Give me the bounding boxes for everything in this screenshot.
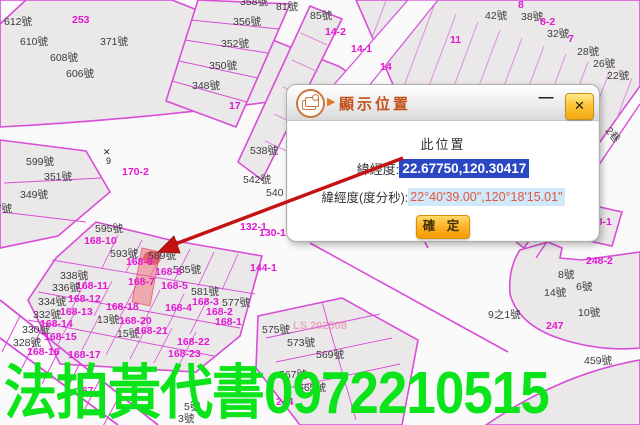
dialog-titlebar[interactable]: ▶ 顯示位置 — ✕: [287, 85, 599, 121]
title-bullet-icon: ▶: [327, 95, 335, 108]
target-location-marker: [143, 251, 161, 265]
position-heading: 此位置: [287, 134, 599, 153]
confirm-button[interactable]: 確 定: [416, 215, 470, 239]
map-position-icon: [296, 89, 325, 118]
dialog-title: 顯示位置: [339, 93, 411, 114]
map-app-window: 612號610號608號606號371號253358號81號356號352號35…: [0, 0, 640, 425]
dialog-body: 此位置 緯經度: 22.67750,120.30417 緯經度(度分秒): 22…: [287, 121, 599, 241]
close-button[interactable]: ✕: [565, 93, 594, 120]
latlng-label: 緯經度:: [357, 159, 400, 178]
minimize-button[interactable]: —: [537, 89, 555, 111]
dms-value[interactable]: 22°40'39.00",120°18'15.01": [408, 188, 564, 206]
watermark-text: 法拍黃代書0972210515: [4, 346, 640, 425]
latlng-value-selected[interactable]: 22.67750,120.30417: [399, 159, 529, 178]
show-position-dialog: ▶ 顯示位置 — ✕ 此位置 緯經度: 22.67750,120.30417 緯…: [286, 84, 600, 242]
dms-label: 緯經度(度分秒):: [321, 187, 408, 206]
